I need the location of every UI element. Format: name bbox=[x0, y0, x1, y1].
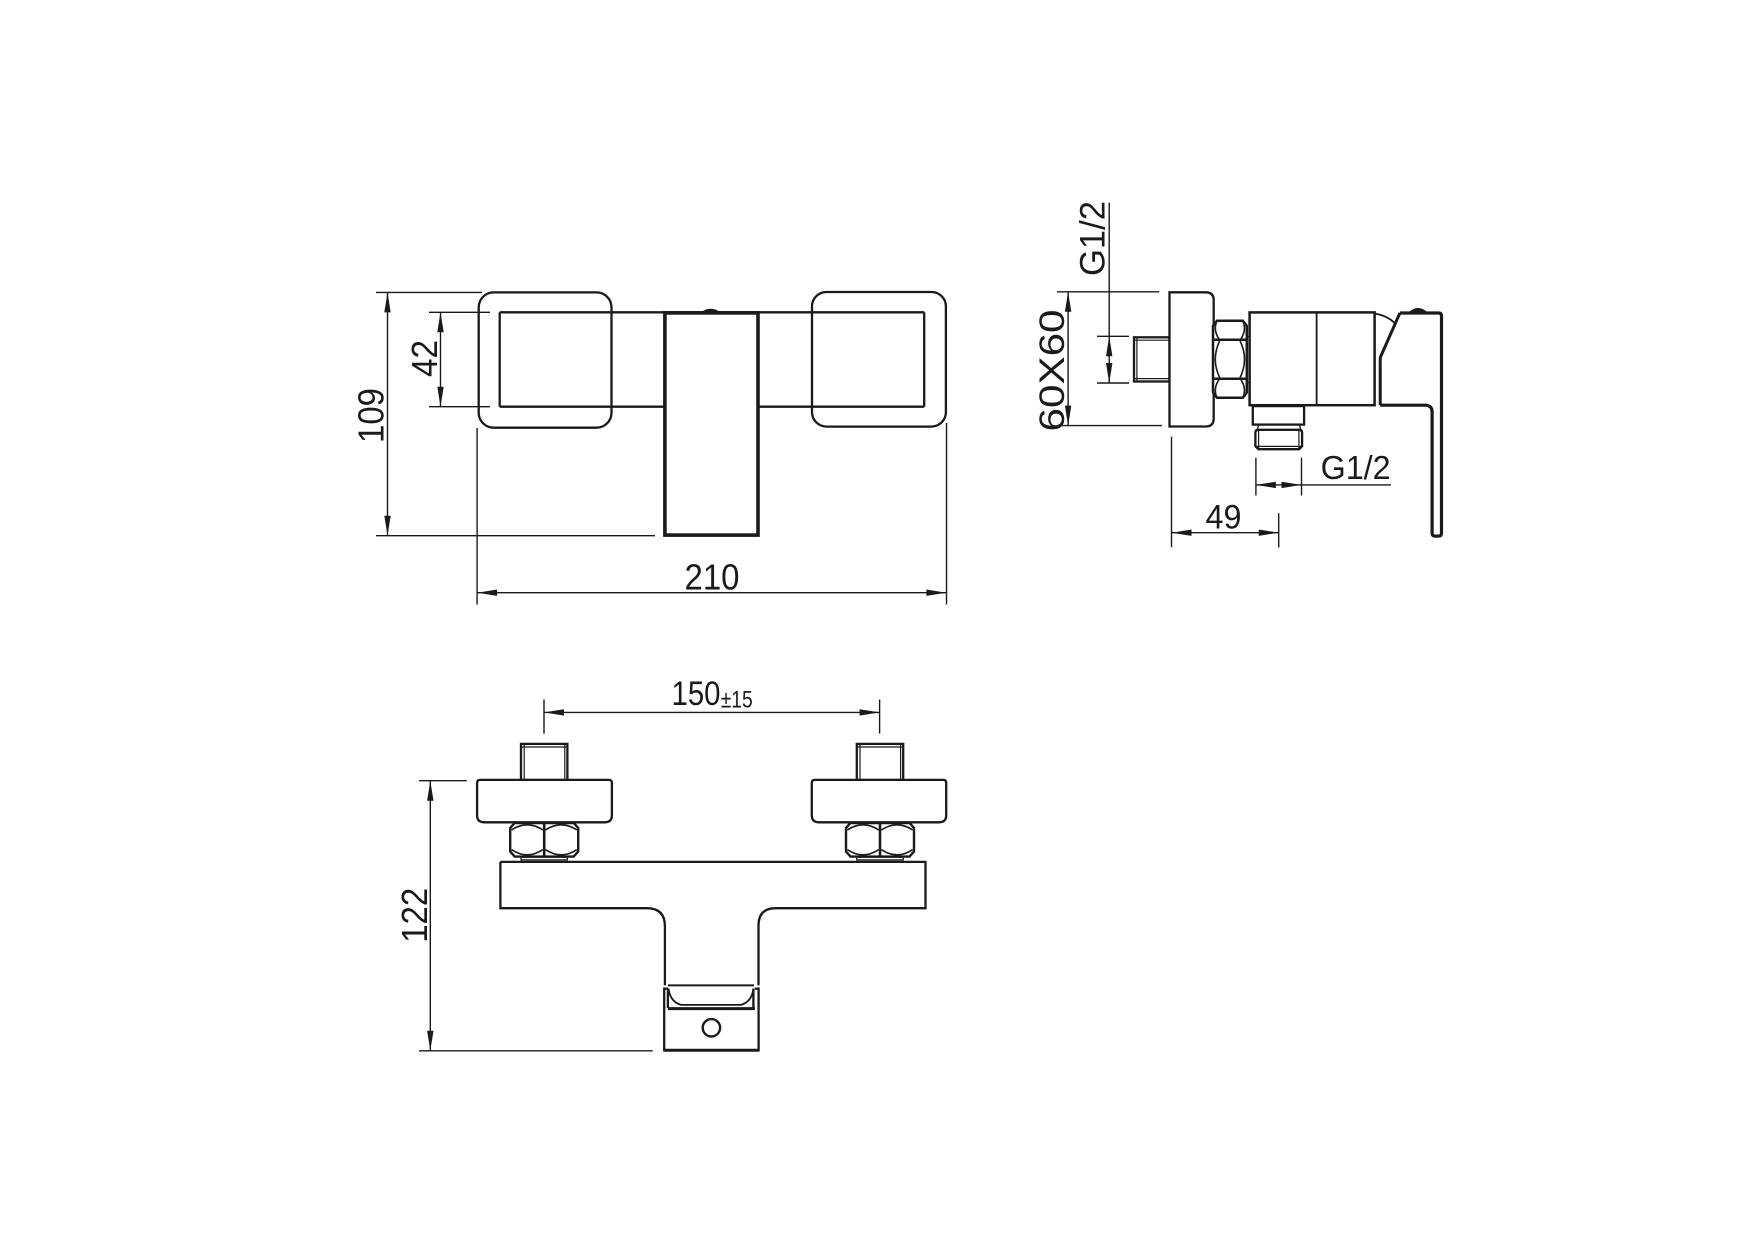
svg-text:±15: ±15 bbox=[721, 687, 753, 714]
svg-text:109: 109 bbox=[351, 388, 392, 443]
svg-text:G1/2: G1/2 bbox=[1074, 201, 1113, 276]
svg-text:42: 42 bbox=[404, 340, 445, 377]
svg-text:60X60: 60X60 bbox=[1033, 310, 1072, 432]
svg-text:150: 150 bbox=[672, 675, 721, 713]
svg-text:G1/2: G1/2 bbox=[1321, 449, 1391, 486]
svg-text:49: 49 bbox=[1206, 498, 1242, 536]
svg-text:210: 210 bbox=[685, 557, 740, 598]
svg-text:122: 122 bbox=[394, 888, 435, 943]
